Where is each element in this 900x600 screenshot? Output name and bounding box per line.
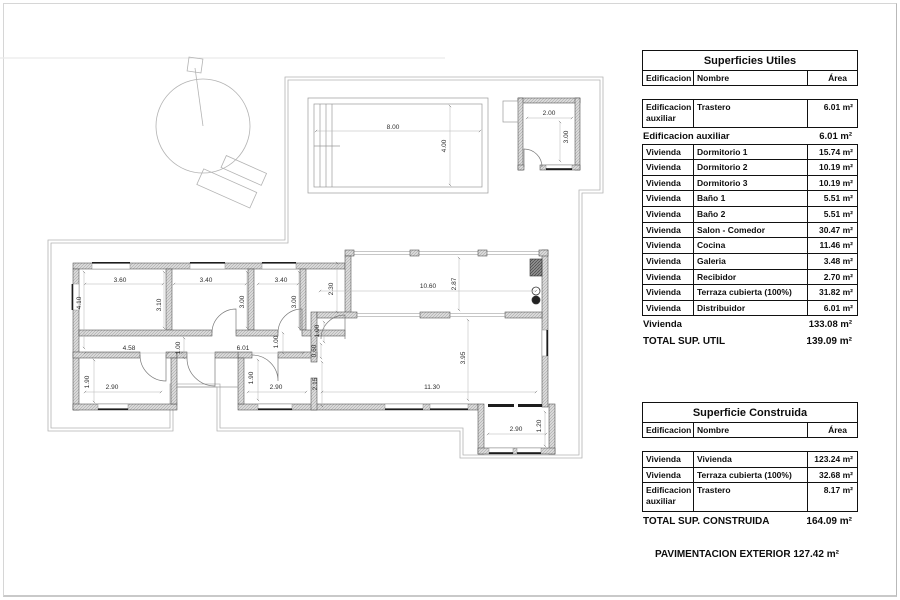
table-cell: Vivienda xyxy=(643,176,693,191)
table-row: Edificacion auxiliarTrastero8.17 m² xyxy=(642,483,858,512)
superficies-utiles-table: Superficies Utiles Edificacion Nombre Ár… xyxy=(642,50,858,349)
table-cell: 133.08 m² xyxy=(809,319,855,330)
column-header-area: Área xyxy=(807,423,856,437)
sink-icon xyxy=(532,296,540,304)
table-head: Superficies Utiles Edificacion Nombre Ár… xyxy=(642,50,858,86)
table-cell: Vivienda xyxy=(643,270,693,285)
table-row: ViviendaRecibidor2.70 m² xyxy=(642,270,858,286)
svg-text:2.90: 2.90 xyxy=(270,384,283,391)
svg-text:1.90: 1.90 xyxy=(248,371,255,384)
table-cell: Vivienda xyxy=(643,319,682,330)
svg-text:1.00: 1.00 xyxy=(273,335,280,348)
table-cell: 15.74 m² xyxy=(807,145,856,160)
table-cell: Dormitorio 1 xyxy=(693,145,807,160)
svg-text:3.40: 3.40 xyxy=(275,277,288,284)
table-row: ViviendaCocina11.46 m² xyxy=(642,238,858,254)
table-head: Superficie Construida Edificacion Nombre… xyxy=(642,402,858,438)
table-body: ViviendaVivienda123.24 m²ViviendaTerraza… xyxy=(642,451,858,529)
column-header-edificacion: Edificacion xyxy=(643,423,693,437)
table-cell: Vivienda xyxy=(643,301,693,316)
table-row: ViviendaDormitorio 115.74 m² xyxy=(642,144,858,161)
table-cell: Vivienda xyxy=(643,207,693,222)
table-cell: 6.01 m² xyxy=(807,100,856,127)
table-row: TOTAL SUP. UTIL139.09 m² xyxy=(642,332,858,349)
ac-unit xyxy=(503,101,518,122)
svg-text:8.00: 8.00 xyxy=(387,124,400,131)
pavimentacion-note: PAVIMENTACION EXTERIOR 127.42 m² xyxy=(655,549,839,560)
bench-1 xyxy=(221,156,266,186)
table-row: ViviendaDormitorio 310.19 m² xyxy=(642,176,858,192)
table-row: ViviendaBaño 15.51 m² xyxy=(642,191,858,207)
table-cell: Vivienda xyxy=(643,145,693,160)
column-header-nombre: Nombre xyxy=(693,71,807,85)
svg-text:1.20: 1.20 xyxy=(536,419,543,432)
table-row: Edificacion auxiliarTrastero6.01 m² xyxy=(642,99,858,128)
svg-text:4.10: 4.10 xyxy=(76,296,83,309)
table-cell: 2.70 m² xyxy=(807,270,856,285)
bench-2 xyxy=(197,169,257,208)
table-row: ViviendaVivienda123.24 m² xyxy=(642,451,858,468)
table-title: Superficie Construida xyxy=(643,403,857,423)
table-cell: 10.19 m² xyxy=(807,160,856,175)
table-cell: 123.24 m² xyxy=(807,452,856,467)
svg-text:1.00: 1.00 xyxy=(314,324,321,337)
floor-plan-drawing: 8.00 4.00 2.00 3.00 3.60 3.40 3.40 2.30 … xyxy=(0,0,640,600)
svg-text:0.60: 0.60 xyxy=(311,344,318,357)
svg-text:2.30: 2.30 xyxy=(328,282,335,295)
table-body: Edificacion auxiliarTrastero6.01 m²Edifi… xyxy=(642,99,858,349)
table-row: ViviendaDistribuidor6.01 m² xyxy=(642,301,858,317)
table-cell: Vivienda xyxy=(643,191,693,206)
table-row: ViviendaDormitorio 210.19 m² xyxy=(642,160,858,176)
table-cell: Dormitorio 3 xyxy=(693,176,807,191)
superficie-construida-table: Superficie Construida Edificacion Nombre… xyxy=(642,402,858,529)
table-row: Vivienda133.08 m² xyxy=(642,316,858,332)
svg-text:3.00: 3.00 xyxy=(563,130,570,143)
svg-text:2.87: 2.87 xyxy=(451,277,458,290)
table-cell: 6.01 m² xyxy=(807,301,856,316)
table-cell: 30.47 m² xyxy=(807,223,856,238)
table-cell: 11.46 m² xyxy=(807,238,856,253)
stove-icon xyxy=(530,259,542,276)
table-gap xyxy=(642,86,858,99)
table-cell: Vivienda xyxy=(643,238,693,253)
kitchen-appliances xyxy=(530,259,542,304)
tree-feature xyxy=(156,57,267,208)
column-header-nombre: Nombre xyxy=(693,423,807,437)
svg-text:3.60: 3.60 xyxy=(114,277,127,284)
svg-text:2.90: 2.90 xyxy=(510,426,523,433)
svg-text:3.00: 3.00 xyxy=(291,295,298,308)
table-cell: TOTAL SUP. UTIL xyxy=(643,336,725,347)
door-arc xyxy=(524,149,542,167)
svg-text:1.90: 1.90 xyxy=(84,375,91,388)
table-cell: Cocina xyxy=(693,238,807,253)
table-cell: 164.09 m² xyxy=(806,516,855,527)
table-row: ViviendaTerraza cubierta (100%)31.82 m² xyxy=(642,285,858,301)
table-cell: 31.82 m² xyxy=(807,285,856,300)
table-cell: Vivienda xyxy=(643,285,693,300)
table-cell: 5.51 m² xyxy=(807,191,856,206)
svg-text:3.00: 3.00 xyxy=(239,295,246,308)
svg-text:4.00: 4.00 xyxy=(441,139,448,152)
table-cell: 5.51 m² xyxy=(807,207,856,222)
table-cell: Dormitorio 2 xyxy=(693,160,807,175)
table-cell: Vivienda xyxy=(643,160,693,175)
table-cell: Terraza cubierta (100%) xyxy=(693,285,807,300)
table-row: ViviendaTerraza cubierta (100%)32.68 m² xyxy=(642,468,858,484)
svg-text:2.00: 2.00 xyxy=(543,110,556,117)
table-cell: Galeria xyxy=(693,254,807,269)
table-cell: 10.19 m² xyxy=(807,176,856,191)
svg-text:3.10: 3.10 xyxy=(156,298,163,311)
table-cell: 139.09 m² xyxy=(806,336,855,347)
svg-text:3.95: 3.95 xyxy=(460,351,467,364)
svg-text:11.30: 11.30 xyxy=(424,384,440,391)
table-cell: Vivienda xyxy=(643,468,693,483)
table-title: Superficies Utiles xyxy=(643,51,857,71)
table-cell: Baño 2 xyxy=(693,207,807,222)
column-header-area: Área xyxy=(807,71,856,85)
table-cell: TOTAL SUP. CONSTRUIDA xyxy=(643,516,770,527)
table-cell: Trastero xyxy=(693,100,807,127)
terrace-colonnade xyxy=(345,250,548,256)
table-cell: Terraza cubierta (100%) xyxy=(693,468,807,483)
table-cell: 6.01 m² xyxy=(819,131,855,142)
table-cell: Vivienda xyxy=(643,452,693,467)
table-cell: 8.17 m² xyxy=(807,483,856,511)
svg-text:2.15: 2.15 xyxy=(312,377,319,390)
table-cell: Edificacion auxiliar xyxy=(643,100,693,127)
table-cell: Edificacion auxiliar xyxy=(643,483,693,511)
page: { "plan": { "dims": ["8.00","4.00","2.00… xyxy=(0,0,900,600)
pool xyxy=(308,98,488,193)
svg-text:6.01: 6.01 xyxy=(237,345,250,352)
svg-text:2.90: 2.90 xyxy=(106,384,119,391)
table-row: TOTAL SUP. CONSTRUIDA164.09 m² xyxy=(642,512,858,529)
column-header-edificacion: Edificacion xyxy=(643,71,693,85)
table-cell: Trastero xyxy=(693,483,807,511)
table-cell: Edificacion auxiliar xyxy=(643,131,730,142)
table-cell: Vivienda xyxy=(643,254,693,269)
svg-text:3.40: 3.40 xyxy=(200,277,213,284)
svg-text:10.60: 10.60 xyxy=(420,283,437,290)
dimension-labels: 8.00 4.00 2.00 3.00 3.60 3.40 3.40 2.30 … xyxy=(76,110,570,433)
table-cell: Distribuidor xyxy=(693,301,807,316)
table-cell: 32.68 m² xyxy=(807,468,856,483)
table-cell: 3.48 m² xyxy=(807,254,856,269)
svg-text:4.58: 4.58 xyxy=(123,345,136,352)
table-gap xyxy=(642,438,858,451)
table-column-headers: Edificacion Nombre Área xyxy=(643,71,857,85)
svg-text:1.00: 1.00 xyxy=(175,341,182,354)
table-cell: Salon - Comedor xyxy=(693,223,807,238)
table-row: ViviendaGaleria3.48 m² xyxy=(642,254,858,270)
table-cell: Baño 1 xyxy=(693,191,807,206)
table-cell: Vivienda xyxy=(643,223,693,238)
table-row: ViviendaSalon - Comedor30.47 m² xyxy=(642,223,858,239)
table-row: ViviendaBaño 25.51 m² xyxy=(642,207,858,223)
table-cell: Vivienda xyxy=(693,452,807,467)
table-row: Edificacion auxiliar6.01 m² xyxy=(642,128,858,144)
table-cell: Recibidor xyxy=(693,270,807,285)
table-column-headers: Edificacion Nombre Área xyxy=(643,423,857,437)
